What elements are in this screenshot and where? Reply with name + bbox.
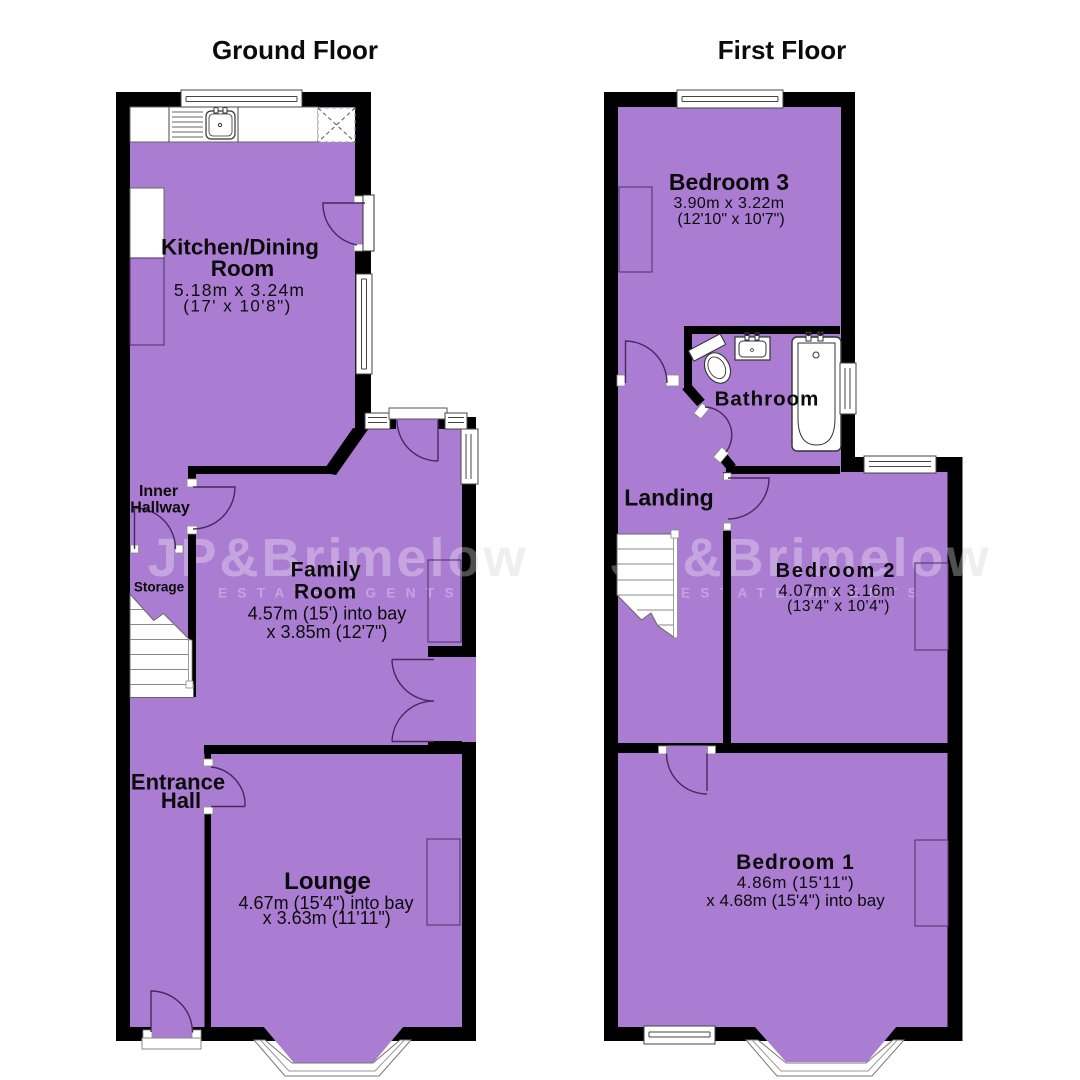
svg-text:Inner: Inner xyxy=(139,483,178,500)
svg-text:3.90m x 3.22m: 3.90m x 3.22m xyxy=(673,195,784,212)
svg-text:Hallway: Hallway xyxy=(130,500,190,517)
svg-text:Lounge: Lounge xyxy=(284,868,371,895)
svg-text:(17' x 10'8"): (17' x 10'8") xyxy=(183,297,292,316)
svg-text:x 4.68m (15'4") into bay: x 4.68m (15'4") into bay xyxy=(706,891,885,910)
svg-text:Bedroom 2: Bedroom 2 xyxy=(776,560,897,582)
svg-text:(13'4" x 10'4"): (13'4" x 10'4") xyxy=(787,598,890,615)
svg-text:Ground Floor: Ground Floor xyxy=(212,35,378,65)
svg-text:Room: Room xyxy=(211,256,274,281)
svg-text:x 3.85m (12'7"): x 3.85m (12'7") xyxy=(267,622,388,642)
svg-text:Storage: Storage xyxy=(134,580,185,595)
svg-text:First Floor: First Floor xyxy=(718,35,847,65)
svg-text:4.57m (15') into bay: 4.57m (15') into bay xyxy=(248,604,407,624)
svg-text:Family: Family xyxy=(291,559,362,582)
svg-text:Room: Room xyxy=(294,581,357,604)
svg-text:Landing: Landing xyxy=(624,485,713,511)
svg-text:Hall: Hall xyxy=(161,788,201,813)
svg-text:Bathroom: Bathroom xyxy=(715,388,820,411)
svg-text:4.86m (15'11"): 4.86m (15'11") xyxy=(737,873,855,892)
svg-text:x 3.63m (11'11"): x 3.63m (11'11") xyxy=(263,908,391,928)
svg-text:Bedroom 3: Bedroom 3 xyxy=(669,169,789,195)
svg-text:Bedroom 1: Bedroom 1 xyxy=(736,851,855,874)
svg-text:(12'10" x 10'7"): (12'10" x 10'7") xyxy=(677,211,784,228)
